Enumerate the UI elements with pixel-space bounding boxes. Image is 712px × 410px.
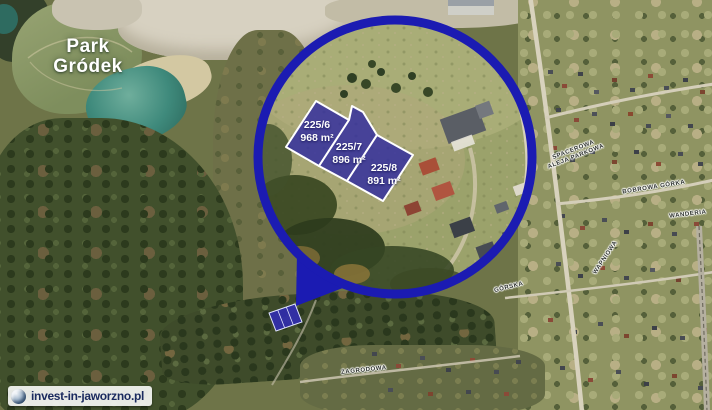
park-label-line2: Gródek <box>53 57 123 77</box>
globe-icon <box>11 389 26 404</box>
parcel-label-225-8: 225/8 891 m² <box>367 162 400 188</box>
parcel-area: 891 m² <box>367 175 400 188</box>
parcel-label-225-7: 225/7 896 m² <box>332 141 365 167</box>
parcel-id: 225/6 <box>300 119 333 132</box>
website-watermark: invest-in-jaworzno.pl <box>8 386 152 406</box>
road-northeast <box>545 84 712 118</box>
source-parcels <box>269 304 302 331</box>
parcel-id: 225/8 <box>367 162 400 175</box>
road-zagrodowa <box>300 356 520 382</box>
parcel-area: 968 m² <box>300 132 333 145</box>
park-grodek-label: Park Gródek <box>53 37 123 77</box>
parcel-id: 225/7 <box>332 141 365 154</box>
park-label-line1: Park <box>53 37 123 57</box>
watermark-text: invest-in-jaworzno.pl <box>31 389 144 403</box>
road-gorska <box>505 272 712 298</box>
parcel-label-225-6: 225/6 968 m² <box>300 119 333 145</box>
parcel-area: 896 m² <box>332 154 365 167</box>
building-top-roof <box>448 0 494 6</box>
road-main <box>530 0 582 410</box>
aerial-map: Park Gródek 225/6 968 m² 225/7 896 m² 22… <box>0 0 712 410</box>
